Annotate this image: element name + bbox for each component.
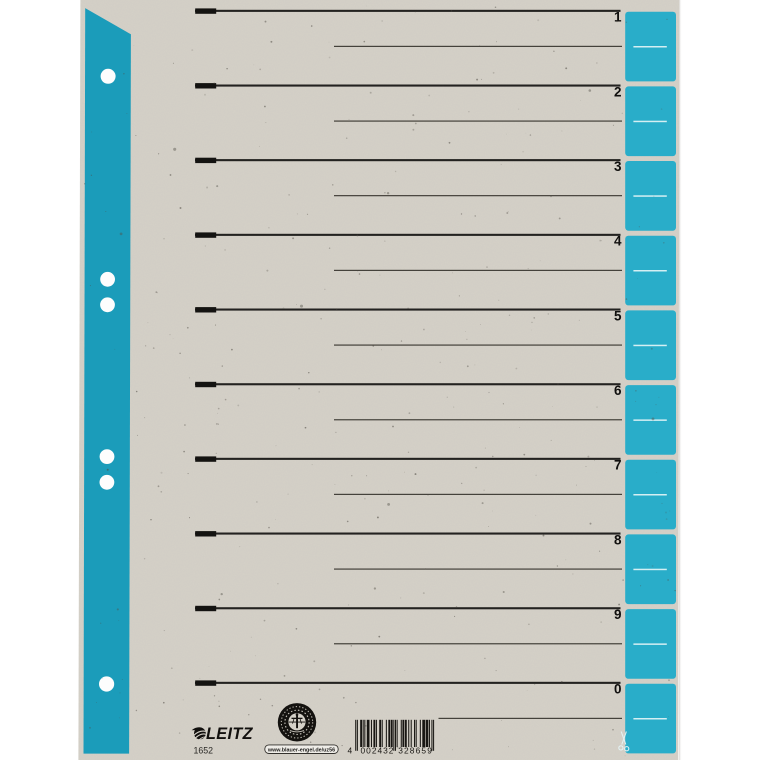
svg-text:002432: 002432 [361, 745, 395, 755]
svg-text:LEITZ: LEITZ [206, 725, 254, 743]
svg-text:6: 6 [614, 383, 622, 398]
svg-text:3: 3 [614, 159, 622, 174]
svg-text:www.blauer-engel.de/uz56: www.blauer-engel.de/uz56 [267, 747, 335, 753]
svg-text:2: 2 [614, 84, 622, 99]
svg-text:1: 1 [614, 10, 622, 25]
svg-text:0: 0 [614, 682, 622, 697]
svg-text:9: 9 [614, 607, 622, 622]
svg-text:5: 5 [614, 308, 622, 323]
svg-text:7: 7 [614, 458, 622, 473]
svg-text:1652: 1652 [194, 746, 214, 756]
svg-text:4: 4 [348, 745, 353, 755]
svg-text:4: 4 [614, 234, 622, 249]
svg-text:8: 8 [614, 532, 622, 547]
svg-text:328659: 328659 [398, 745, 433, 755]
